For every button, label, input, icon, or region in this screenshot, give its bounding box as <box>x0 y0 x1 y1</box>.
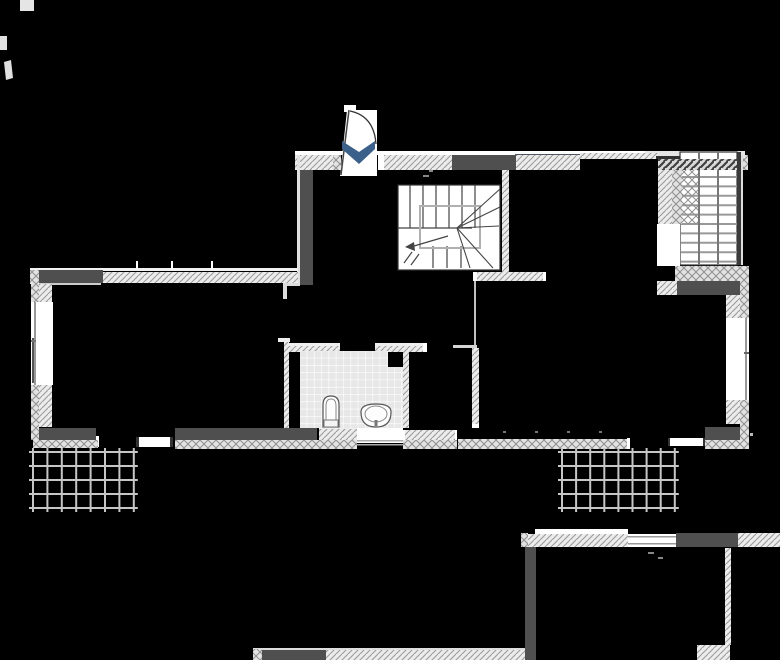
fragment-top <box>20 0 34 11</box>
bathroom-left-wall <box>284 342 289 428</box>
sink-fixture <box>361 404 391 427</box>
stairwell <box>398 170 546 281</box>
left-room-top-wall <box>30 261 298 285</box>
outside-wall-fragments <box>0 0 34 80</box>
balcony-grid-right <box>558 448 679 512</box>
fragment-left-lower <box>4 60 13 80</box>
floor-plan-drawing <box>0 0 780 660</box>
bottom-wall <box>31 427 753 449</box>
stairwell-right-wall <box>502 170 509 272</box>
balcony-grid-left <box>29 448 138 512</box>
fragment-left-upper <box>0 36 7 50</box>
bottom-right-room <box>521 529 780 660</box>
stair-landing-wall <box>477 272 543 281</box>
hall-partition-wall <box>453 281 479 428</box>
bathroom <box>278 338 427 428</box>
floor-plan-canvas <box>0 0 780 660</box>
bottom-room-window <box>628 534 676 547</box>
bottom-window-left <box>136 437 173 447</box>
right-wall <box>726 280 749 440</box>
bottom-room-left-wall <box>525 547 536 660</box>
bottom-window-right <box>668 438 705 446</box>
entry-wall-dark-segment <box>452 155 516 170</box>
shaft-door-opening <box>657 224 680 266</box>
shaft-top-wall <box>658 159 740 170</box>
bottom-edge-wall <box>253 648 525 660</box>
bathroom-right-wall <box>403 351 409 428</box>
bottom-room-partition <box>725 548 731 645</box>
entrance-door <box>340 105 377 176</box>
toilet-fixture <box>323 396 339 427</box>
shaft <box>657 152 749 295</box>
left-wall <box>31 284 53 427</box>
